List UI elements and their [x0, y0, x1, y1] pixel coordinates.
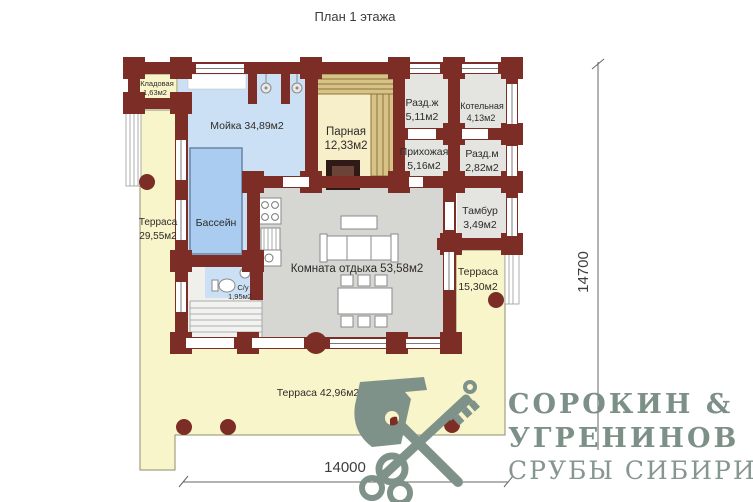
- label-su-name: С/у: [237, 283, 249, 292]
- pool: [190, 148, 242, 254]
- label-tambur-name: Тамбур: [462, 205, 498, 217]
- label-razd-m-name: Разд.м: [465, 148, 498, 160]
- label-kladovaya-area: 1,63м2: [143, 88, 167, 97]
- label-parnaya-area: 12,33м2: [324, 140, 367, 152]
- label-prihozhaya-area: 5,16м2: [407, 160, 441, 172]
- dimension-horizontal-label: 14000: [324, 459, 366, 476]
- toilet-bowl: [219, 279, 235, 292]
- label-komnata: Комната отдыха 53,58м2: [291, 263, 424, 275]
- label-moyka: Мойка 34,89м2: [210, 120, 284, 132]
- label-razd-m-area: 2,82м2: [465, 162, 499, 174]
- label-razd-zh-name: Разд.ж: [405, 97, 438, 109]
- label-parnaya-name: Парная: [326, 126, 366, 138]
- label-kotelnaya-name: Котельная: [460, 101, 504, 111]
- label-bassein: Бассейн: [196, 217, 237, 229]
- label-su-area: 1,95м2: [228, 292, 252, 301]
- dimension-vertical-label: 14700: [575, 251, 592, 293]
- logo-line1: СОРОКИН &: [508, 389, 733, 420]
- dining-set: [338, 275, 392, 327]
- logo-line3: СРУБЫ СИБИРИ: [508, 456, 753, 485]
- label-terrasa-left-name: Терраса: [139, 217, 178, 228]
- floor-plan-page: 14700 14000 Кладовая 1,63м2 Мойка 34,89м…: [0, 0, 753, 502]
- label-terrasa-bottom: Терраса 42,96м2: [277, 387, 360, 399]
- label-terrasa-right-name: Терраса: [458, 266, 498, 278]
- moyka-window-bay: [188, 74, 246, 89]
- label-kotelnaya-area: 4,13м2: [467, 113, 496, 123]
- logo-text: СОРОКИН & УГРЕНИНОВ СРУБЫ СИБИРИ: [508, 389, 753, 485]
- label-razd-zh-area: 5,11м2: [406, 111, 439, 123]
- toilet-icon: [212, 280, 218, 291]
- label-terrasa-right-area: 15,30м2: [458, 281, 497, 293]
- label-prihozhaya-name: Прихожая: [400, 146, 449, 158]
- room-prihozhaya-floor: [404, 139, 449, 178]
- stove-icon: [259, 198, 281, 224]
- label-kladovaya-name: Кладовая: [140, 79, 174, 88]
- logo-line2: УГРЕНИНОВ: [508, 423, 739, 454]
- page-title: План 1 этажа: [314, 9, 396, 24]
- label-terrasa-left-area: 29,55м2: [139, 231, 177, 242]
- label-tambur-area: 3,49м2: [463, 219, 497, 231]
